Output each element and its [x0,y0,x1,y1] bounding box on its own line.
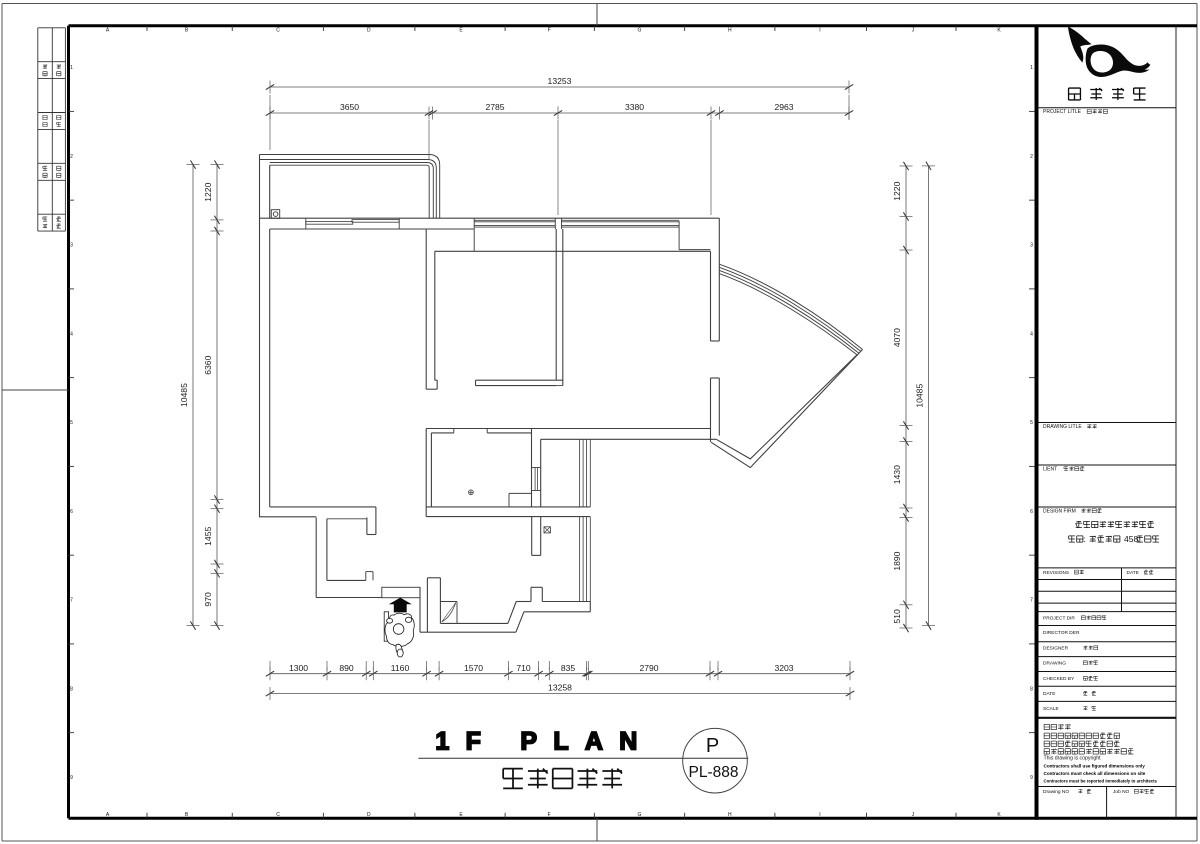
svg-text:1430: 1430 [892,465,902,484]
svg-text:1455: 1455 [203,527,213,546]
svg-text:890: 890 [339,663,354,673]
svg-text:4: 4 [70,331,73,337]
svg-text:3: 3 [70,243,73,249]
svg-text:1160: 1160 [391,663,410,673]
svg-text:5: 5 [1030,420,1033,426]
svg-text:1: 1 [1030,65,1033,71]
svg-text:2790: 2790 [639,663,658,673]
svg-text:5: 5 [70,420,73,426]
svg-text:Drawing NO: Drawing NO [1043,789,1069,795]
svg-text:1F PLAN: 1F PLAN [435,728,653,756]
svg-text::: : [1084,535,1086,544]
svg-text:4: 4 [1030,331,1033,337]
svg-text:This drawing is copyright: This drawing is copyright [1044,756,1102,762]
svg-text:970: 970 [203,592,213,607]
svg-text:DIRECTOR DER: DIRECTOR DER [1043,630,1080,636]
svg-text:C: C [276,812,280,818]
svg-text:DATE: DATE [1127,570,1139,576]
svg-text:I: I [819,28,820,34]
svg-text:13253: 13253 [548,76,572,86]
svg-text:10485: 10485 [179,383,189,407]
svg-text:3203: 3203 [774,663,793,673]
svg-text:8: 8 [1030,686,1033,692]
svg-text:835: 835 [561,663,576,673]
svg-text:P: P [706,735,719,757]
svg-text:Contractors shall use figured: Contractors shall use figured dimensions… [1044,763,1146,768]
svg-text:DRAWING LITLE: DRAWING LITLE [1043,424,1082,430]
svg-text:H: H [728,812,732,818]
svg-text:2963: 2963 [774,102,793,112]
svg-text:6: 6 [70,509,73,515]
svg-text:2: 2 [1030,154,1033,160]
svg-text:CHECKED BY: CHECKED BY [1043,676,1075,682]
svg-text:1890: 1890 [892,551,902,570]
svg-text:Contractors must check all dim: Contractors must check all dimensions on… [1044,771,1146,776]
svg-text:9: 9 [1030,775,1033,781]
svg-text:SCALE: SCALE [1043,706,1059,712]
svg-text:REVISIONS: REVISIONS [1043,570,1069,576]
svg-text:Job NO: Job NO [1113,789,1130,795]
svg-text:7: 7 [1030,598,1033,604]
svg-text:710: 710 [516,663,531,673]
svg-text:F: F [548,28,551,34]
svg-text:1220: 1220 [892,181,902,200]
svg-text:PL-888: PL-888 [689,764,739,781]
svg-text:510: 510 [892,609,902,624]
svg-text:9: 9 [70,775,73,781]
svg-text:3650: 3650 [340,102,359,112]
svg-text:C: C [276,28,280,34]
svg-text:PROJECT LITLE: PROJECT LITLE [1043,109,1082,115]
svg-text:Contractors must be reported i: Contractors must be reported immediately… [1044,778,1158,783]
svg-text:2: 2 [70,154,73,160]
svg-text:LIENT: LIENT [1043,467,1057,473]
svg-text:1220: 1220 [203,182,213,201]
svg-text:6: 6 [1030,509,1033,515]
svg-text:1570: 1570 [464,663,483,673]
svg-text:13258: 13258 [548,683,572,693]
svg-text:DESIGNER: DESIGNER [1043,646,1069,652]
svg-text:I: I [819,812,820,818]
svg-text:458: 458 [1124,534,1138,544]
svg-text:2785: 2785 [485,102,504,112]
svg-text:DESIGN FIRM: DESIGN FIRM [1043,509,1076,515]
svg-text:10485: 10485 [914,384,924,408]
svg-text:4070: 4070 [892,328,902,347]
svg-text:1: 1 [70,65,73,71]
svg-text:D: D [367,812,371,818]
svg-text:DRAWING: DRAWING [1043,661,1066,667]
svg-text:F: F [548,812,551,818]
svg-text:7: 7 [70,598,73,604]
svg-text:H: H [728,28,732,34]
svg-text:8: 8 [70,686,73,692]
svg-text:3: 3 [1030,243,1033,249]
svg-text:G: G [638,812,642,818]
svg-text:3380: 3380 [625,102,644,112]
svg-text:G: G [638,28,642,34]
svg-text:D: D [367,28,371,34]
svg-text:PROJECT DIR: PROJECT DIR [1043,616,1075,622]
svg-text:1300: 1300 [289,663,308,673]
svg-text:6360: 6360 [203,355,213,374]
svg-text:DATE: DATE [1043,691,1055,697]
